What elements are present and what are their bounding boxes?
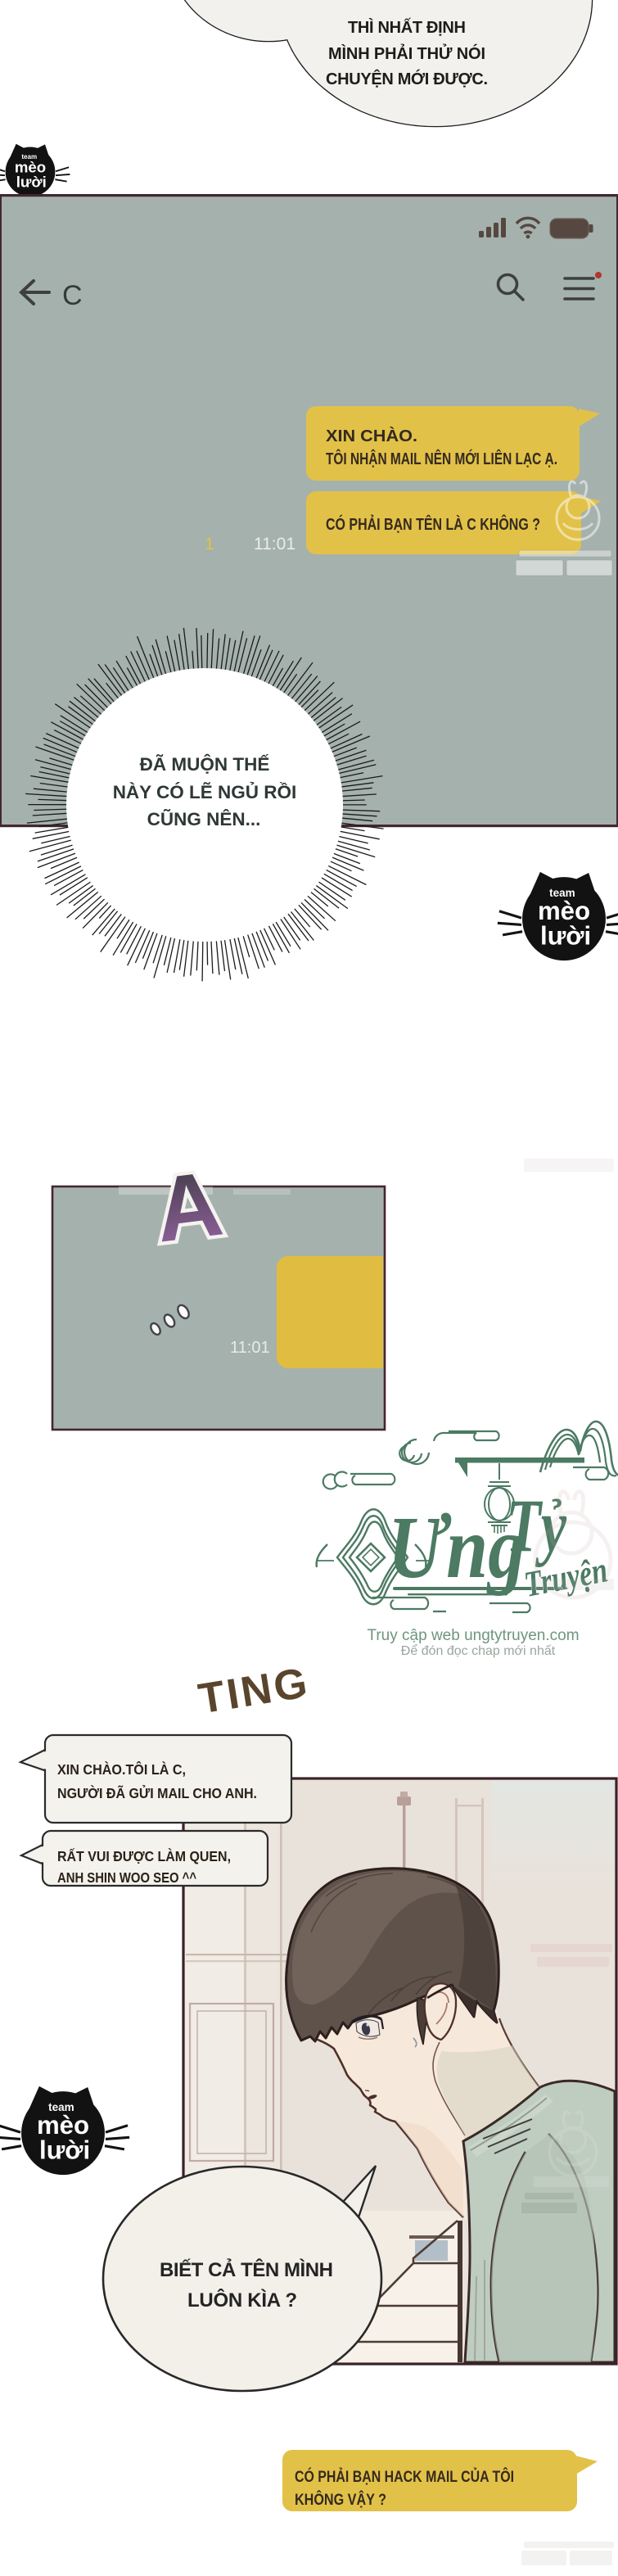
svg-text:ANH SHIN WOO SEO ^^: ANH SHIN WOO SEO ^^ [57, 1869, 196, 1886]
svg-text:CÓ PHẢI BẠN HACK MAIL CỦA TÔI: CÓ PHẢI BẠN HACK MAIL CỦA TÔI [295, 2468, 514, 2486]
svg-text:NÀY CÓ LẼ NGỦ RỒI: NÀY CÓ LẼ NGỦ RỒI [113, 782, 297, 802]
svg-text:XIN CHÀO.TÔI LÀ C,: XIN CHÀO.TÔI LÀ C, [57, 1760, 186, 1778]
svg-text:CŨNG NÊN...: CŨNG NÊN... [147, 809, 261, 829]
svg-text:NGƯỜI ĐÃ GỬI MAIL CHO ANH.: NGƯỜI ĐÃ GỬI MAIL CHO ANH. [57, 1784, 257, 1801]
svg-text:XIN CHÀO.: XIN CHÀO. [326, 427, 417, 445]
svg-text:MÌNH PHẢI THỬ NÓI: MÌNH PHẢI THỬ NÓI [328, 43, 485, 63]
svg-text:RẤT VUI ĐƯỢC LÀM QUEN,: RẤT VUI ĐƯỢC LÀM QUEN, [57, 1847, 231, 1864]
svg-text:KHÔNG VẬY ?: KHÔNG VẬY ? [295, 2491, 386, 2509]
svg-text:Ưng: Ưng [388, 1499, 526, 1597]
svg-text:LUÔN KÌA ?: LUÔN KÌA ? [187, 2289, 297, 2312]
svg-text:A: A [150, 1152, 228, 1262]
svg-text:BIẾT CẢ TÊN MÌNH: BIẾT CẢ TÊN MÌNH [160, 2257, 333, 2281]
svg-text:CHUYỆN MỚI ĐƯỢC.: CHUYỆN MỚI ĐƯỢC. [326, 69, 488, 88]
svg-text:Để đón đọc chap mới nhất: Để đón đọc chap mới nhất [401, 1643, 556, 1658]
svg-text:Truy cập web ungtytruyen.com: Truy cập web ungtytruyen.com [367, 1627, 579, 1644]
svg-text:ĐÃ MUỘN THẾ: ĐÃ MUỘN THẾ [140, 754, 270, 775]
svg-text:THÌ NHẤT ĐỊNH: THÌ NHẤT ĐỊNH [348, 18, 466, 37]
svg-text:CÓ PHẢI BẠN TÊN LÀ C KHÔNG ?: CÓ PHẢI BẠN TÊN LÀ C KHÔNG ? [326, 514, 540, 534]
svg-text:TÔI NHẬN MAIL NÊN MỚI LIÊN LẠC: TÔI NHẬN MAIL NÊN MỚI LIÊN LẠC Ạ. [326, 449, 557, 468]
svg-text:1: 1 [205, 535, 214, 554]
svg-text:C: C [62, 280, 83, 311]
svg-text:11:01: 11:01 [254, 535, 295, 554]
svg-text:11:01: 11:01 [230, 1339, 270, 1357]
